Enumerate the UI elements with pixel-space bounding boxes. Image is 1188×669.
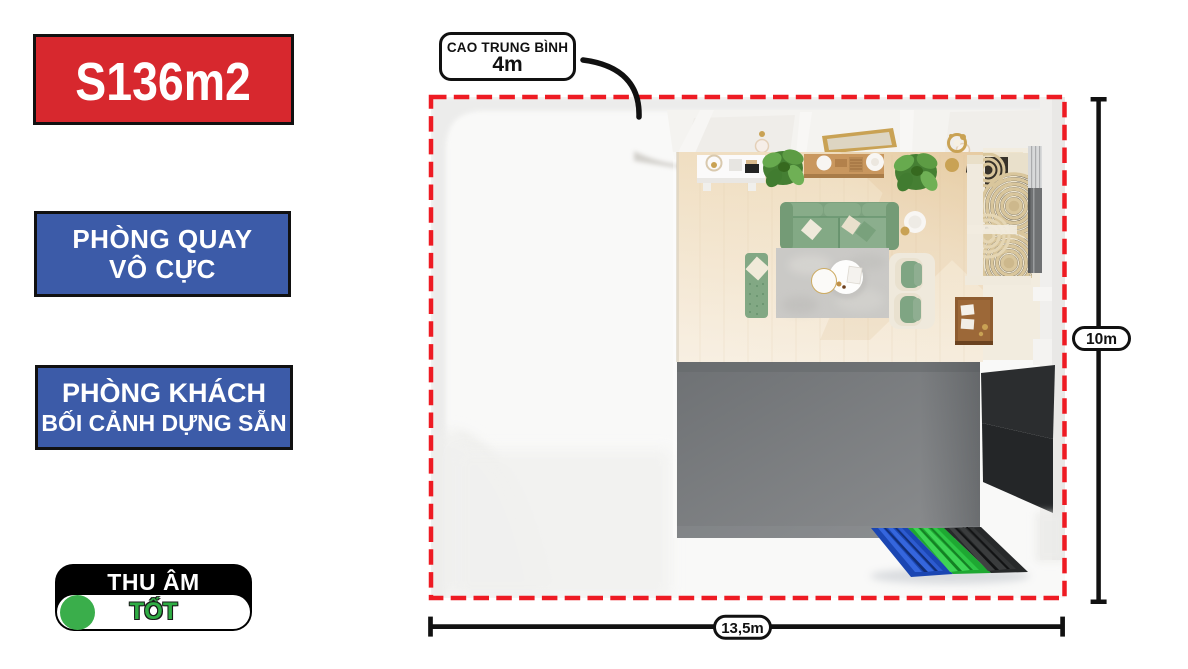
svg-text:13,5m: 13,5m (721, 620, 764, 637)
svg-text:10m: 10m (1086, 331, 1117, 348)
